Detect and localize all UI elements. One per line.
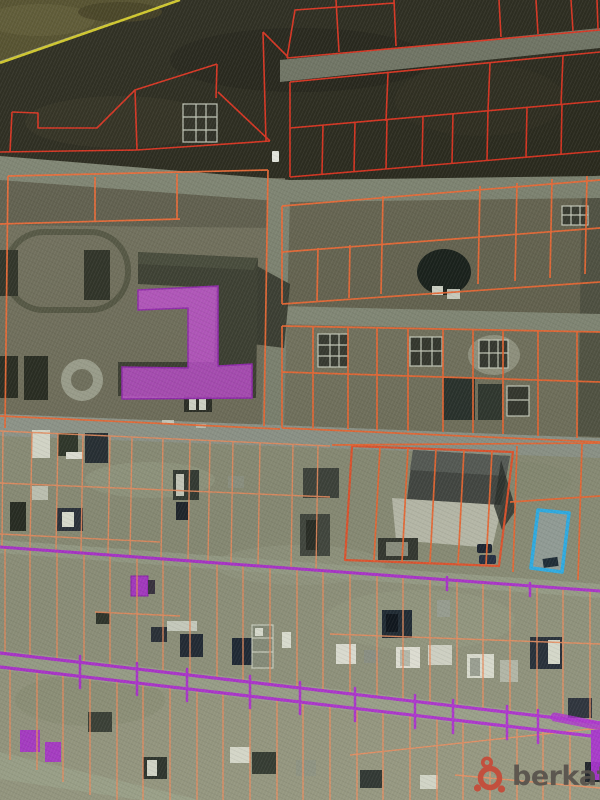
buildings-shape bbox=[85, 433, 108, 463]
map-viewer-screen: berkat bbox=[0, 0, 600, 800]
building-footprints-shape bbox=[443, 378, 475, 420]
watermark-text: berkat bbox=[512, 763, 600, 790]
buildings-shape bbox=[336, 644, 356, 664]
buildings-shape bbox=[296, 760, 316, 776]
buildings-shape bbox=[32, 486, 48, 500]
buildings-shape bbox=[10, 502, 26, 531]
buildings-shape bbox=[176, 502, 188, 520]
cadastral-grid-orange-shape bbox=[349, 245, 350, 298]
terrain-base-shape bbox=[325, 590, 515, 650]
cadastral-grid-red-shape bbox=[561, 104, 562, 154]
buildings-shape bbox=[437, 600, 450, 617]
cadastral-grid-red-shape bbox=[386, 119, 387, 169]
sports-court bbox=[0, 250, 18, 296]
magenta-building bbox=[45, 742, 61, 762]
buildings-shape bbox=[303, 468, 339, 498]
building-footprints-shape bbox=[318, 334, 348, 367]
cadastral-grid-red-shape bbox=[452, 113, 453, 163]
vehicle-dark bbox=[479, 555, 496, 564]
sports-court bbox=[84, 250, 110, 300]
buildings-shape bbox=[66, 452, 83, 459]
buildings-shape bbox=[232, 638, 252, 665]
cadastral-grid-red-shape bbox=[597, 0, 598, 29]
buildings-shape bbox=[500, 660, 518, 682]
map-canvas[interactable] bbox=[0, 0, 600, 800]
buildings-shape bbox=[386, 614, 398, 632]
buildings-shape bbox=[32, 430, 50, 458]
selected-parcel[interactable] bbox=[531, 510, 569, 572]
berkat-logo-icon bbox=[472, 756, 508, 796]
buildings-shape bbox=[548, 640, 560, 664]
building-footprints-shape bbox=[507, 386, 529, 416]
buildings-shape bbox=[167, 621, 197, 631]
terrain-features-shape bbox=[71, 369, 93, 391]
cadastral-grid-orange-shape bbox=[317, 248, 318, 301]
cadastral-grid-red-shape bbox=[216, 64, 217, 98]
building-footprints-shape bbox=[183, 104, 217, 142]
buildings-shape bbox=[147, 760, 157, 776]
buildings-shape bbox=[400, 650, 410, 666]
buildings-shape bbox=[428, 645, 452, 665]
buildings-shape bbox=[282, 632, 291, 648]
terrain-base-shape bbox=[395, 64, 565, 136]
terrain-features-shape bbox=[0, 356, 18, 398]
cadastral-grid-red-shape bbox=[322, 125, 323, 174]
cadastral-grid-red-shape bbox=[487, 110, 488, 160]
vehicle-dark bbox=[477, 544, 492, 553]
buildings-shape bbox=[96, 612, 110, 624]
buildings-shape bbox=[151, 627, 167, 642]
buildings-shape bbox=[420, 775, 438, 789]
terrain-features-shape bbox=[386, 542, 408, 556]
vehicle-white bbox=[272, 151, 279, 162]
terrain-features-shape bbox=[24, 356, 48, 400]
watermark: berkat bbox=[472, 756, 600, 796]
terrain-features-shape bbox=[447, 289, 460, 299]
buildings-shape bbox=[176, 474, 184, 496]
buildings-shape bbox=[360, 770, 382, 788]
dark-building bbox=[417, 249, 471, 295]
building-footprints-shape bbox=[255, 628, 263, 636]
magenta-building bbox=[131, 576, 148, 596]
buildings-shape bbox=[62, 512, 74, 527]
cadastral-grid-red-shape bbox=[354, 122, 355, 171]
buildings-shape bbox=[148, 580, 155, 594]
buildings-shape bbox=[230, 747, 250, 763]
terrain-features-shape bbox=[199, 399, 206, 410]
buildings-shape bbox=[568, 698, 592, 718]
building-footprints-shape bbox=[478, 384, 502, 420]
buildings-shape bbox=[470, 658, 480, 676]
buildings-shape bbox=[180, 634, 203, 657]
buildings-shape bbox=[228, 476, 244, 488]
terrain-features-shape bbox=[189, 399, 196, 410]
cadastral-grid-red-shape bbox=[526, 107, 527, 157]
buildings-shape bbox=[252, 752, 276, 774]
cadastral-grid-salmon-shape bbox=[2, 432, 3, 546]
cadastral-grid-red-shape bbox=[422, 116, 423, 166]
buildings-shape bbox=[88, 712, 112, 732]
